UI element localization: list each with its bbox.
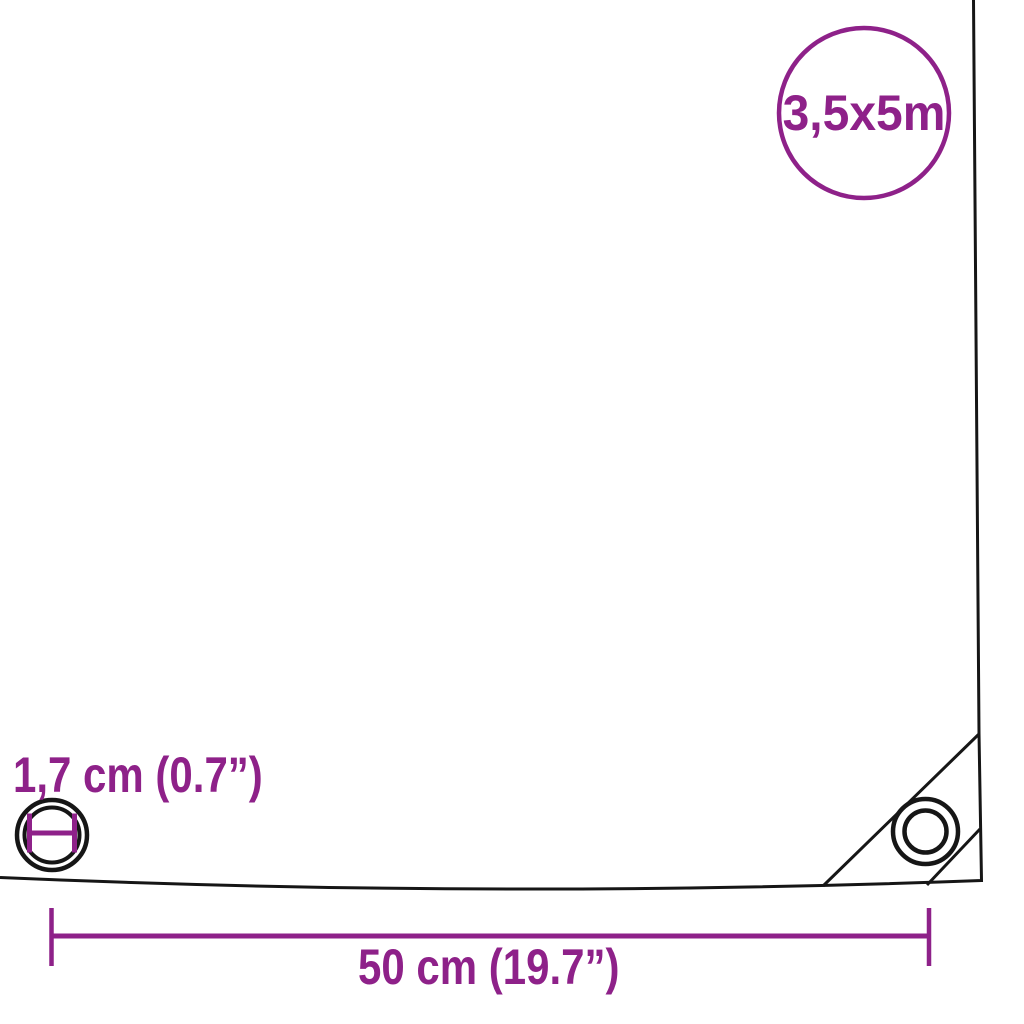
eyelet-diameter-label: 1,7 cm (0.7”)	[13, 750, 263, 800]
corner-grommet-inner-ring	[905, 811, 947, 853]
tarpaulin-dimension-diagram: 3,5x5m 1,7 cm (0.7”) 50 cm (19.7”)	[0, 0, 1024, 1024]
corner-grommet-icon	[893, 799, 958, 864]
eyelet-diameter-icon	[17, 800, 87, 870]
tarp-illustration	[0, 0, 1024, 1024]
size-badge-label: 3,5x5m	[783, 88, 946, 138]
grommet-spacing-label: 50 cm (19.7”)	[358, 942, 619, 992]
